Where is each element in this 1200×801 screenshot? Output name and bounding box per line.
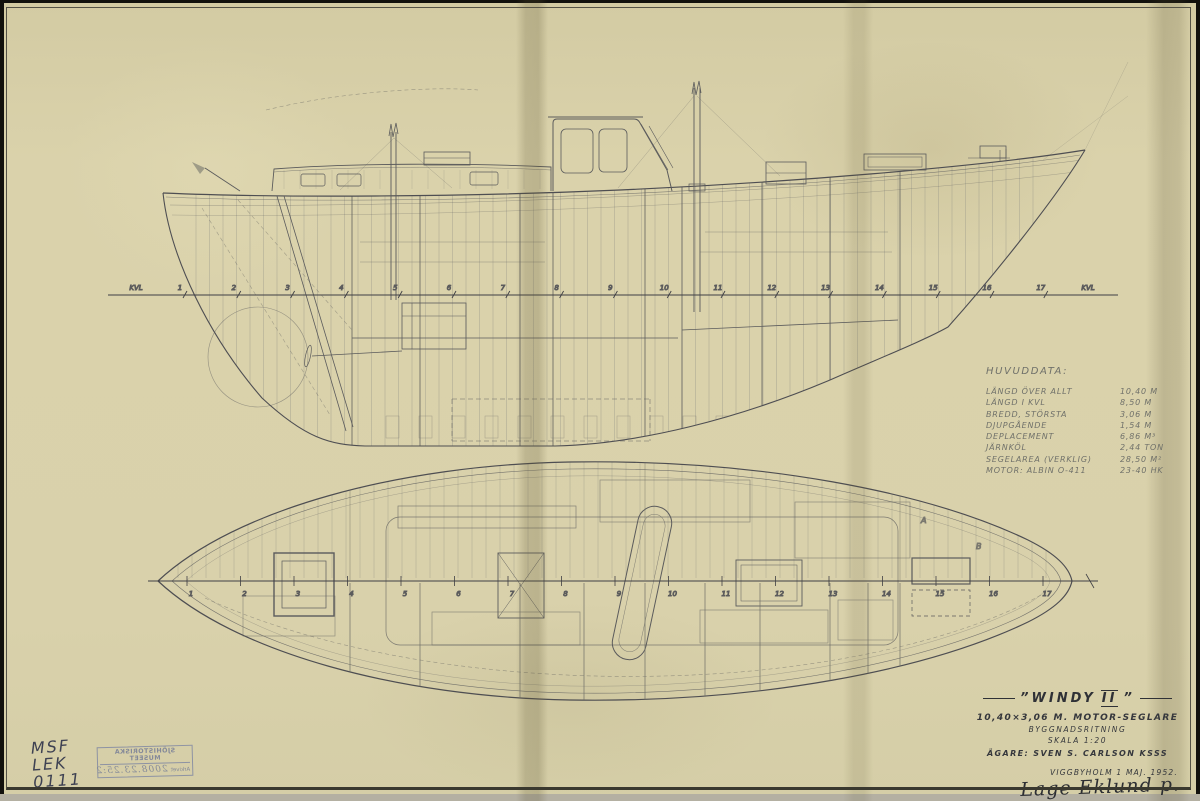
aft-cabin [272, 152, 551, 191]
station-label: 10 [668, 590, 677, 598]
museum-stamp-arkivet: Arkivet [171, 767, 191, 774]
profile-hull-bottom [163, 150, 1085, 446]
station-label: 11 [714, 284, 723, 292]
main-mast [618, 81, 780, 312]
huvuddata-value: 8,50 M [1120, 397, 1186, 408]
engine-box [402, 303, 466, 349]
title-rule-left [983, 698, 1015, 699]
station-label: 1 [178, 284, 182, 292]
floor-timber [485, 416, 498, 438]
engine-skylight [498, 553, 544, 618]
rudder [277, 196, 353, 431]
huvuddata-label: DJUPGÅENDE [986, 420, 1120, 431]
floor-timber [386, 416, 399, 438]
station-label: 4 [339, 284, 343, 292]
profile-station-labels: KVL1234567891011121314151617KVL [129, 284, 1094, 298]
huvuddata-row: DJUPGÅENDE1,54 M [986, 420, 1186, 431]
huvuddata-label: LÄNGD ÖVER ALLT [986, 386, 1120, 397]
huvuddata-value: 6,86 M³ [1120, 431, 1186, 442]
huvuddata-row: SEGELAREA (VERKLIG)28,50 M² [986, 454, 1186, 465]
locker [838, 600, 893, 640]
huvuddata-value: 28,50 M² [1120, 454, 1186, 465]
boat-type-line: 10,40×3,06 M. MOTOR-SEGLARE [975, 713, 1180, 723]
station-label: 15 [936, 590, 945, 598]
archive-code-line: 0111 [33, 770, 83, 790]
boat-name-numeral: II [1101, 690, 1119, 707]
huvuddata-value: 2,44 TON [1120, 442, 1186, 453]
floor-timber [584, 416, 597, 438]
station-label: 16 [983, 284, 992, 292]
station-label: 8 [554, 284, 559, 292]
scale-line: SKALA 1:20 [975, 736, 1180, 745]
title-block: ”WINDYII” 10,40×3,06 M. MOTOR-SEGLARE BY… [975, 690, 1180, 799]
station-label: 7 [510, 590, 515, 598]
station-label: 17 [1043, 590, 1052, 598]
station-label: 14 [882, 590, 891, 598]
profile-deck-inner-line [166, 155, 1080, 200]
owner-line: ÄGARE: SVEN S. CARLSON KSSS [975, 749, 1180, 758]
scanned-drawing-canvas: KVL1234567891011121314151617KVL [0, 0, 1200, 801]
huvuddata-title: HUVUDDATA: [986, 366, 1186, 377]
cockpit [736, 560, 802, 606]
station-label: KVL [129, 284, 142, 292]
station-label: 3 [285, 284, 289, 292]
berth [432, 612, 580, 645]
station-label: 4 [349, 590, 353, 598]
profile-hull-outline [163, 150, 1085, 196]
station-label: 5 [403, 590, 408, 598]
dinghy [609, 503, 675, 663]
huvuddata-value: 10,40 M [1120, 386, 1186, 397]
station-label: 3 [296, 590, 300, 598]
station-label: 15 [929, 284, 938, 292]
profile-view: KVL1234567891011121314151617KVL [108, 62, 1128, 450]
huvuddata-rows: LÄNGD ÖVER ALLT10,40 MLÄNGD I KVL8,50 MB… [986, 386, 1186, 476]
archive-code: MSF LEK 0111 [30, 736, 82, 790]
station-label: 6 [456, 590, 461, 598]
title-rule-right [1140, 698, 1172, 699]
station-label: 12 [767, 284, 776, 292]
station-label: 8 [563, 590, 568, 598]
station-label: 14 [875, 284, 884, 292]
museum-stamp-number-row: Arkivet 2008.23.25:2 [100, 763, 190, 776]
station-label: 6 [447, 284, 452, 292]
designer-signature: Lage Eklund p. [975, 773, 1181, 801]
floor-timber [749, 416, 762, 438]
station-label: 10 [660, 284, 669, 292]
boat-name: ”WINDYII” [975, 690, 1180, 707]
huvuddata-label: JÄRNKÖL [986, 442, 1120, 453]
huvuddata-label: SEGELAREA (VERKLIG) [986, 454, 1120, 465]
station-label: 9 [617, 590, 622, 598]
frame-letter: B [976, 542, 982, 551]
frame-letter: A [920, 516, 926, 525]
station-label: 17 [1036, 284, 1045, 292]
station-label: 13 [829, 590, 838, 598]
huvuddata-table: HUVUDDATA: LÄNGD ÖVER ALLT10,40 MLÄNGD I… [986, 366, 1186, 476]
museum-stamp-box: SJÖHISTORISKA MUSEET Arkivet 2008.23.25:… [97, 745, 194, 779]
huvuddata-value: 3,06 M [1120, 409, 1186, 420]
huvuddata-label: DEPLACEMENT [986, 431, 1120, 442]
floor-timber [452, 416, 465, 438]
berth [700, 610, 828, 643]
station-label: 12 [775, 590, 784, 598]
boat-name-quote: ” [1123, 691, 1134, 706]
boat-name-text: ”WINDY [1020, 691, 1096, 706]
huvuddata-row: LÄNGD I KVL8,50 M [986, 397, 1186, 408]
station-label: 9 [608, 284, 613, 292]
huvuddata-row: MOTOR: ALBIN O-41123-40 HK [986, 465, 1186, 476]
station-label: 13 [821, 284, 830, 292]
station-label: 1 [189, 590, 193, 598]
huvuddata-row: LÄNGD ÖVER ALLT10,40 M [986, 386, 1186, 397]
drawing-type-line: BYGGNADSRITNING [975, 725, 1180, 734]
plan-view: 1234567891011121314151617 AB [148, 450, 1098, 700]
station-label: 11 [722, 590, 731, 598]
station-label: 16 [989, 590, 998, 598]
huvuddata-label: LÄNGD I KVL [986, 397, 1120, 408]
station-label: 2 [242, 590, 247, 598]
museum-stamp: SJÖHISTORISKA MUSEET Arkivet 2008.23.25:… [97, 745, 194, 779]
aft-hatch [912, 558, 970, 584]
station-label: 7 [501, 284, 506, 292]
huvuddata-value: 23-40 HK [1120, 465, 1186, 476]
museum-stamp-number: 2008.23.25:2 [95, 764, 168, 776]
huvuddata-row: DEPLACEMENT6,86 M³ [986, 431, 1186, 442]
huvuddata-row: BREDD, STÖRSTA3,06 M [986, 409, 1186, 420]
station-label: 5 [393, 284, 398, 292]
station-label: 2 [232, 284, 237, 292]
profile-interior [202, 196, 898, 441]
station-label: KVL [1081, 284, 1094, 292]
huvuddata-label: BREDD, STÖRSTA [986, 409, 1120, 420]
mizzen-mast [266, 89, 478, 300]
sole-dashed-line [205, 592, 1046, 676]
pilothouse [548, 117, 673, 191]
huvuddata-value: 1,54 M [1120, 420, 1186, 431]
plan-station-labels: 1234567891011121314151617 [187, 576, 1052, 598]
stern-flagstaff [192, 162, 240, 191]
deck-beams [178, 450, 1046, 578]
foredeck-fittings [766, 62, 1128, 184]
huvuddata-label: MOTOR: ALBIN O-411 [986, 465, 1120, 476]
huvuddata-row: JÄRNKÖL2,44 TON [986, 442, 1186, 453]
